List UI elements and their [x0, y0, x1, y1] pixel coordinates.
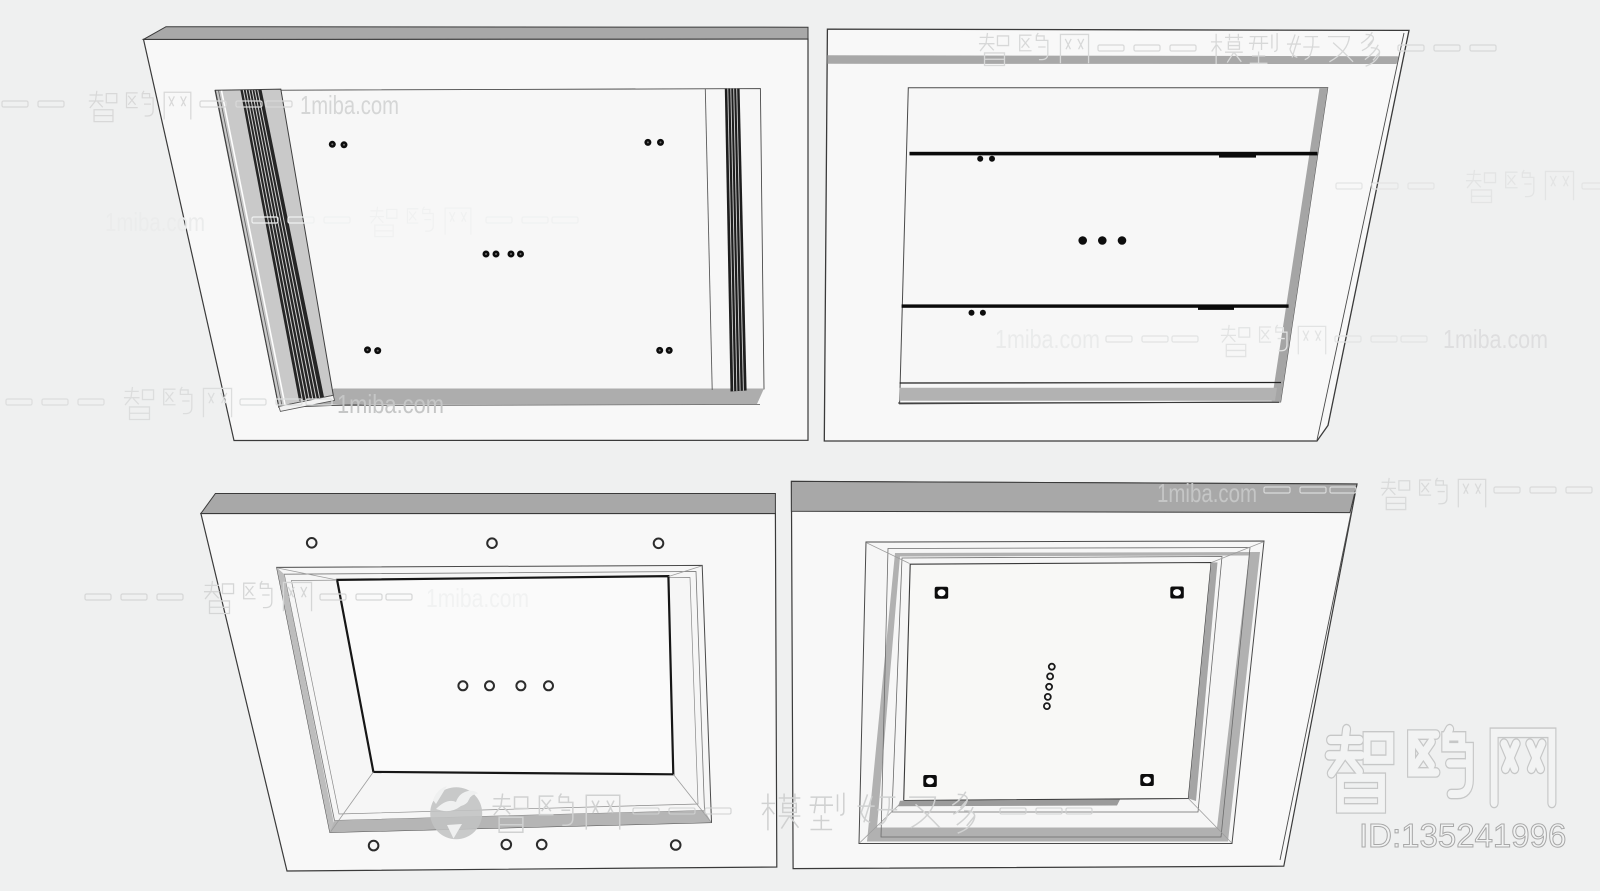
svg-text:1miba.com: 1miba.com: [426, 583, 529, 613]
svg-text:ID:135241996: ID:135241996: [1359, 817, 1566, 854]
svg-text:1miba.com: 1miba.com: [995, 324, 1100, 354]
svg-text:1miba.com: 1miba.com: [105, 207, 205, 237]
svg-text:1miba.com: 1miba.com: [1443, 324, 1548, 354]
svg-text:1miba.com: 1miba.com: [300, 90, 399, 120]
svg-text:1miba.com: 1miba.com: [1157, 478, 1257, 508]
svg-text:1miba.com: 1miba.com: [337, 389, 444, 419]
